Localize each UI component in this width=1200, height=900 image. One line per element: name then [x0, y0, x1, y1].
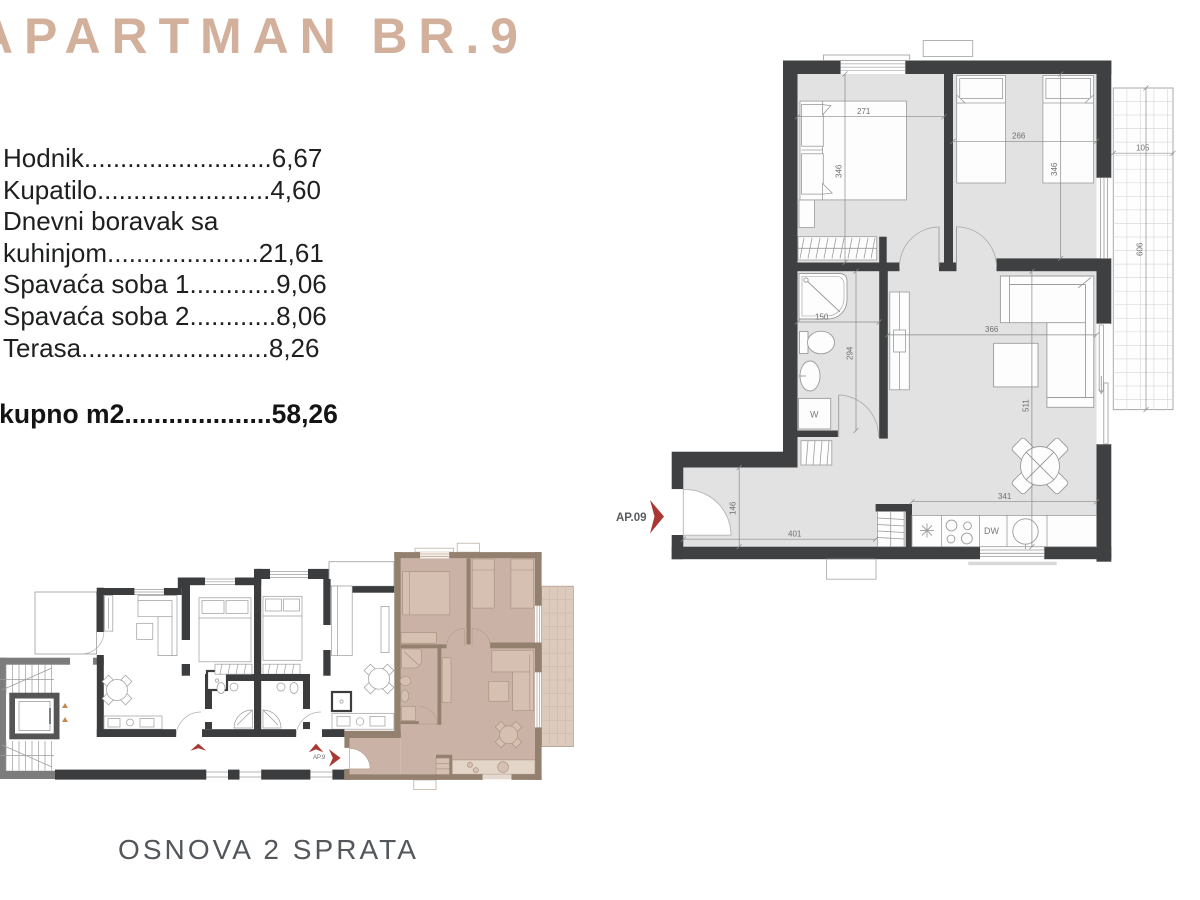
- svg-text:294: 294: [846, 346, 855, 360]
- svg-text:AP.09: AP.09: [616, 512, 646, 524]
- svg-text:146: 146: [729, 501, 738, 515]
- svg-text:W: W: [810, 410, 819, 420]
- svg-text:266: 266: [1012, 132, 1026, 141]
- svg-text:271: 271: [857, 107, 871, 116]
- svg-text:341: 341: [998, 492, 1012, 501]
- svg-text:366: 366: [985, 325, 999, 334]
- svg-text:346: 346: [835, 164, 844, 178]
- svg-text:DW: DW: [984, 526, 999, 536]
- svg-text:AP.9: AP.9: [313, 755, 326, 761]
- svg-text:511: 511: [1022, 399, 1031, 412]
- svg-text:105: 105: [1136, 144, 1150, 153]
- svg-text:346: 346: [1050, 162, 1059, 176]
- svg-text:150: 150: [815, 313, 829, 322]
- svg-text:606: 606: [1136, 242, 1145, 256]
- svg-text:401: 401: [788, 530, 802, 539]
